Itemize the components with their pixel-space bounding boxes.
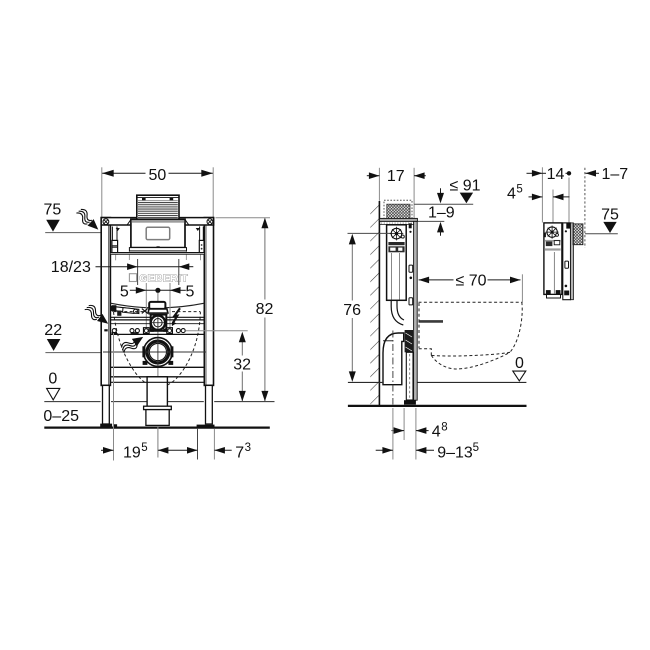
- svg-text:0–25: 0–25: [43, 408, 79, 425]
- svg-text:7: 7: [235, 444, 244, 461]
- svg-text:32: 32: [233, 356, 251, 373]
- svg-text:1–9: 1–9: [428, 204, 455, 221]
- svg-text:GEBERIT: GEBERIT: [139, 274, 188, 285]
- svg-text:19: 19: [123, 444, 141, 461]
- svg-text:5: 5: [141, 442, 147, 454]
- svg-text:5: 5: [473, 442, 479, 454]
- svg-text:5: 5: [120, 283, 129, 300]
- svg-text:5: 5: [516, 183, 522, 195]
- svg-text:75: 75: [601, 207, 619, 224]
- svg-text:3: 3: [245, 442, 251, 454]
- svg-text:0: 0: [515, 355, 524, 372]
- svg-text:4: 4: [507, 186, 516, 203]
- svg-text:≤ 91: ≤ 91: [450, 178, 481, 195]
- svg-text:18/23: 18/23: [51, 259, 91, 276]
- svg-text:9–13: 9–13: [437, 444, 473, 461]
- svg-text:14: 14: [547, 166, 565, 183]
- svg-text:50: 50: [149, 167, 167, 184]
- svg-text:1–7: 1–7: [602, 166, 629, 183]
- svg-text:76: 76: [343, 302, 361, 319]
- svg-text:4: 4: [432, 423, 441, 440]
- svg-text:5: 5: [186, 283, 195, 300]
- svg-text:22: 22: [44, 322, 62, 339]
- svg-text:≤ 70: ≤ 70: [456, 273, 487, 290]
- svg-text:0: 0: [48, 371, 57, 388]
- svg-text:17: 17: [387, 168, 405, 185]
- svg-text:8: 8: [441, 421, 447, 433]
- svg-text:75: 75: [44, 202, 62, 219]
- svg-text:82: 82: [256, 301, 274, 318]
